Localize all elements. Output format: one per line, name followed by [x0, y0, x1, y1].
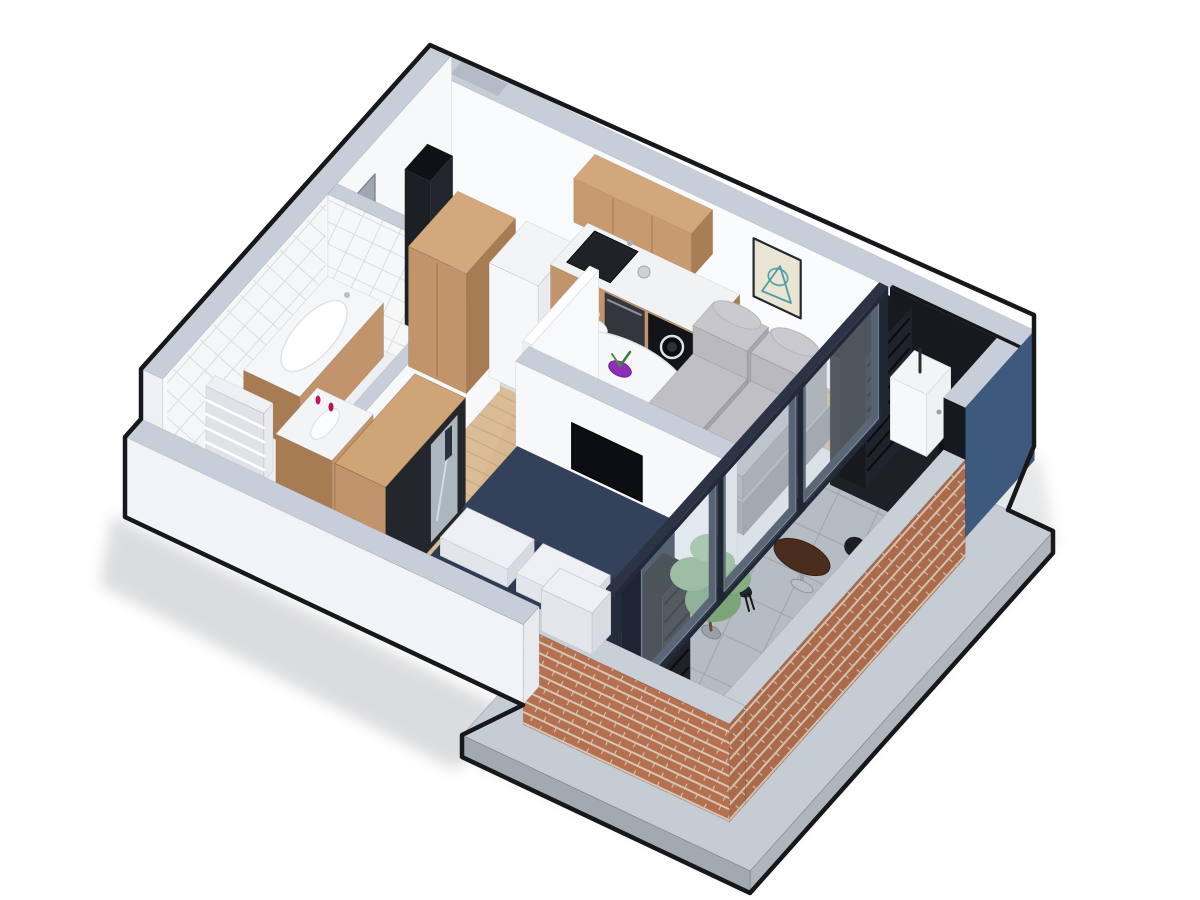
- washer-drum: [667, 342, 677, 352]
- soap-bottle-1: [316, 396, 321, 405]
- floorplan-3d-render: [0, 0, 1200, 900]
- floorplan-page: [0, 0, 1200, 900]
- closet-clothes: [445, 425, 452, 461]
- soap-bottle-2: [329, 403, 334, 412]
- kettle: [638, 266, 650, 278]
- bathtub-faucet: [344, 292, 350, 298]
- heater-dial: [937, 410, 942, 415]
- sink-faucet: [627, 240, 633, 246]
